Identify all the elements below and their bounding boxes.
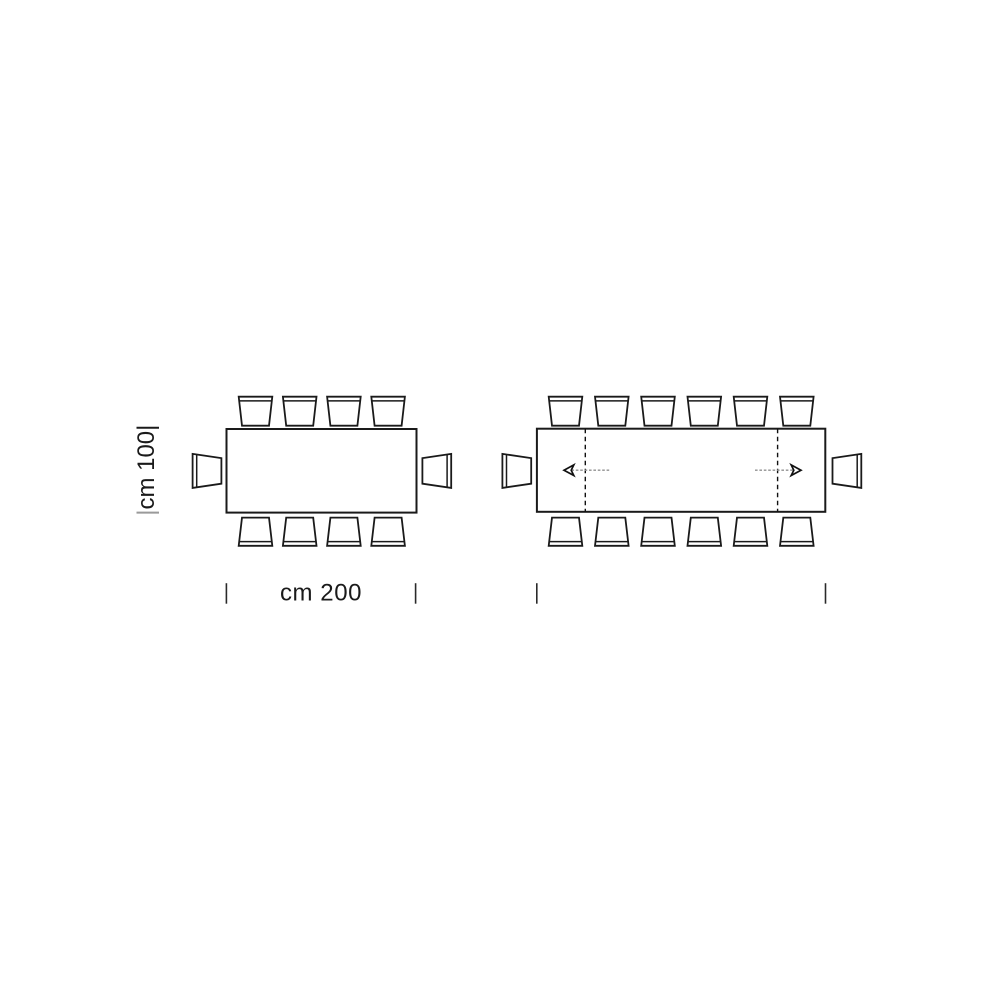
svg-text:cm 200: cm 200 <box>280 580 362 607</box>
svg-text:|cm 100|: |cm 100| <box>133 425 160 516</box>
